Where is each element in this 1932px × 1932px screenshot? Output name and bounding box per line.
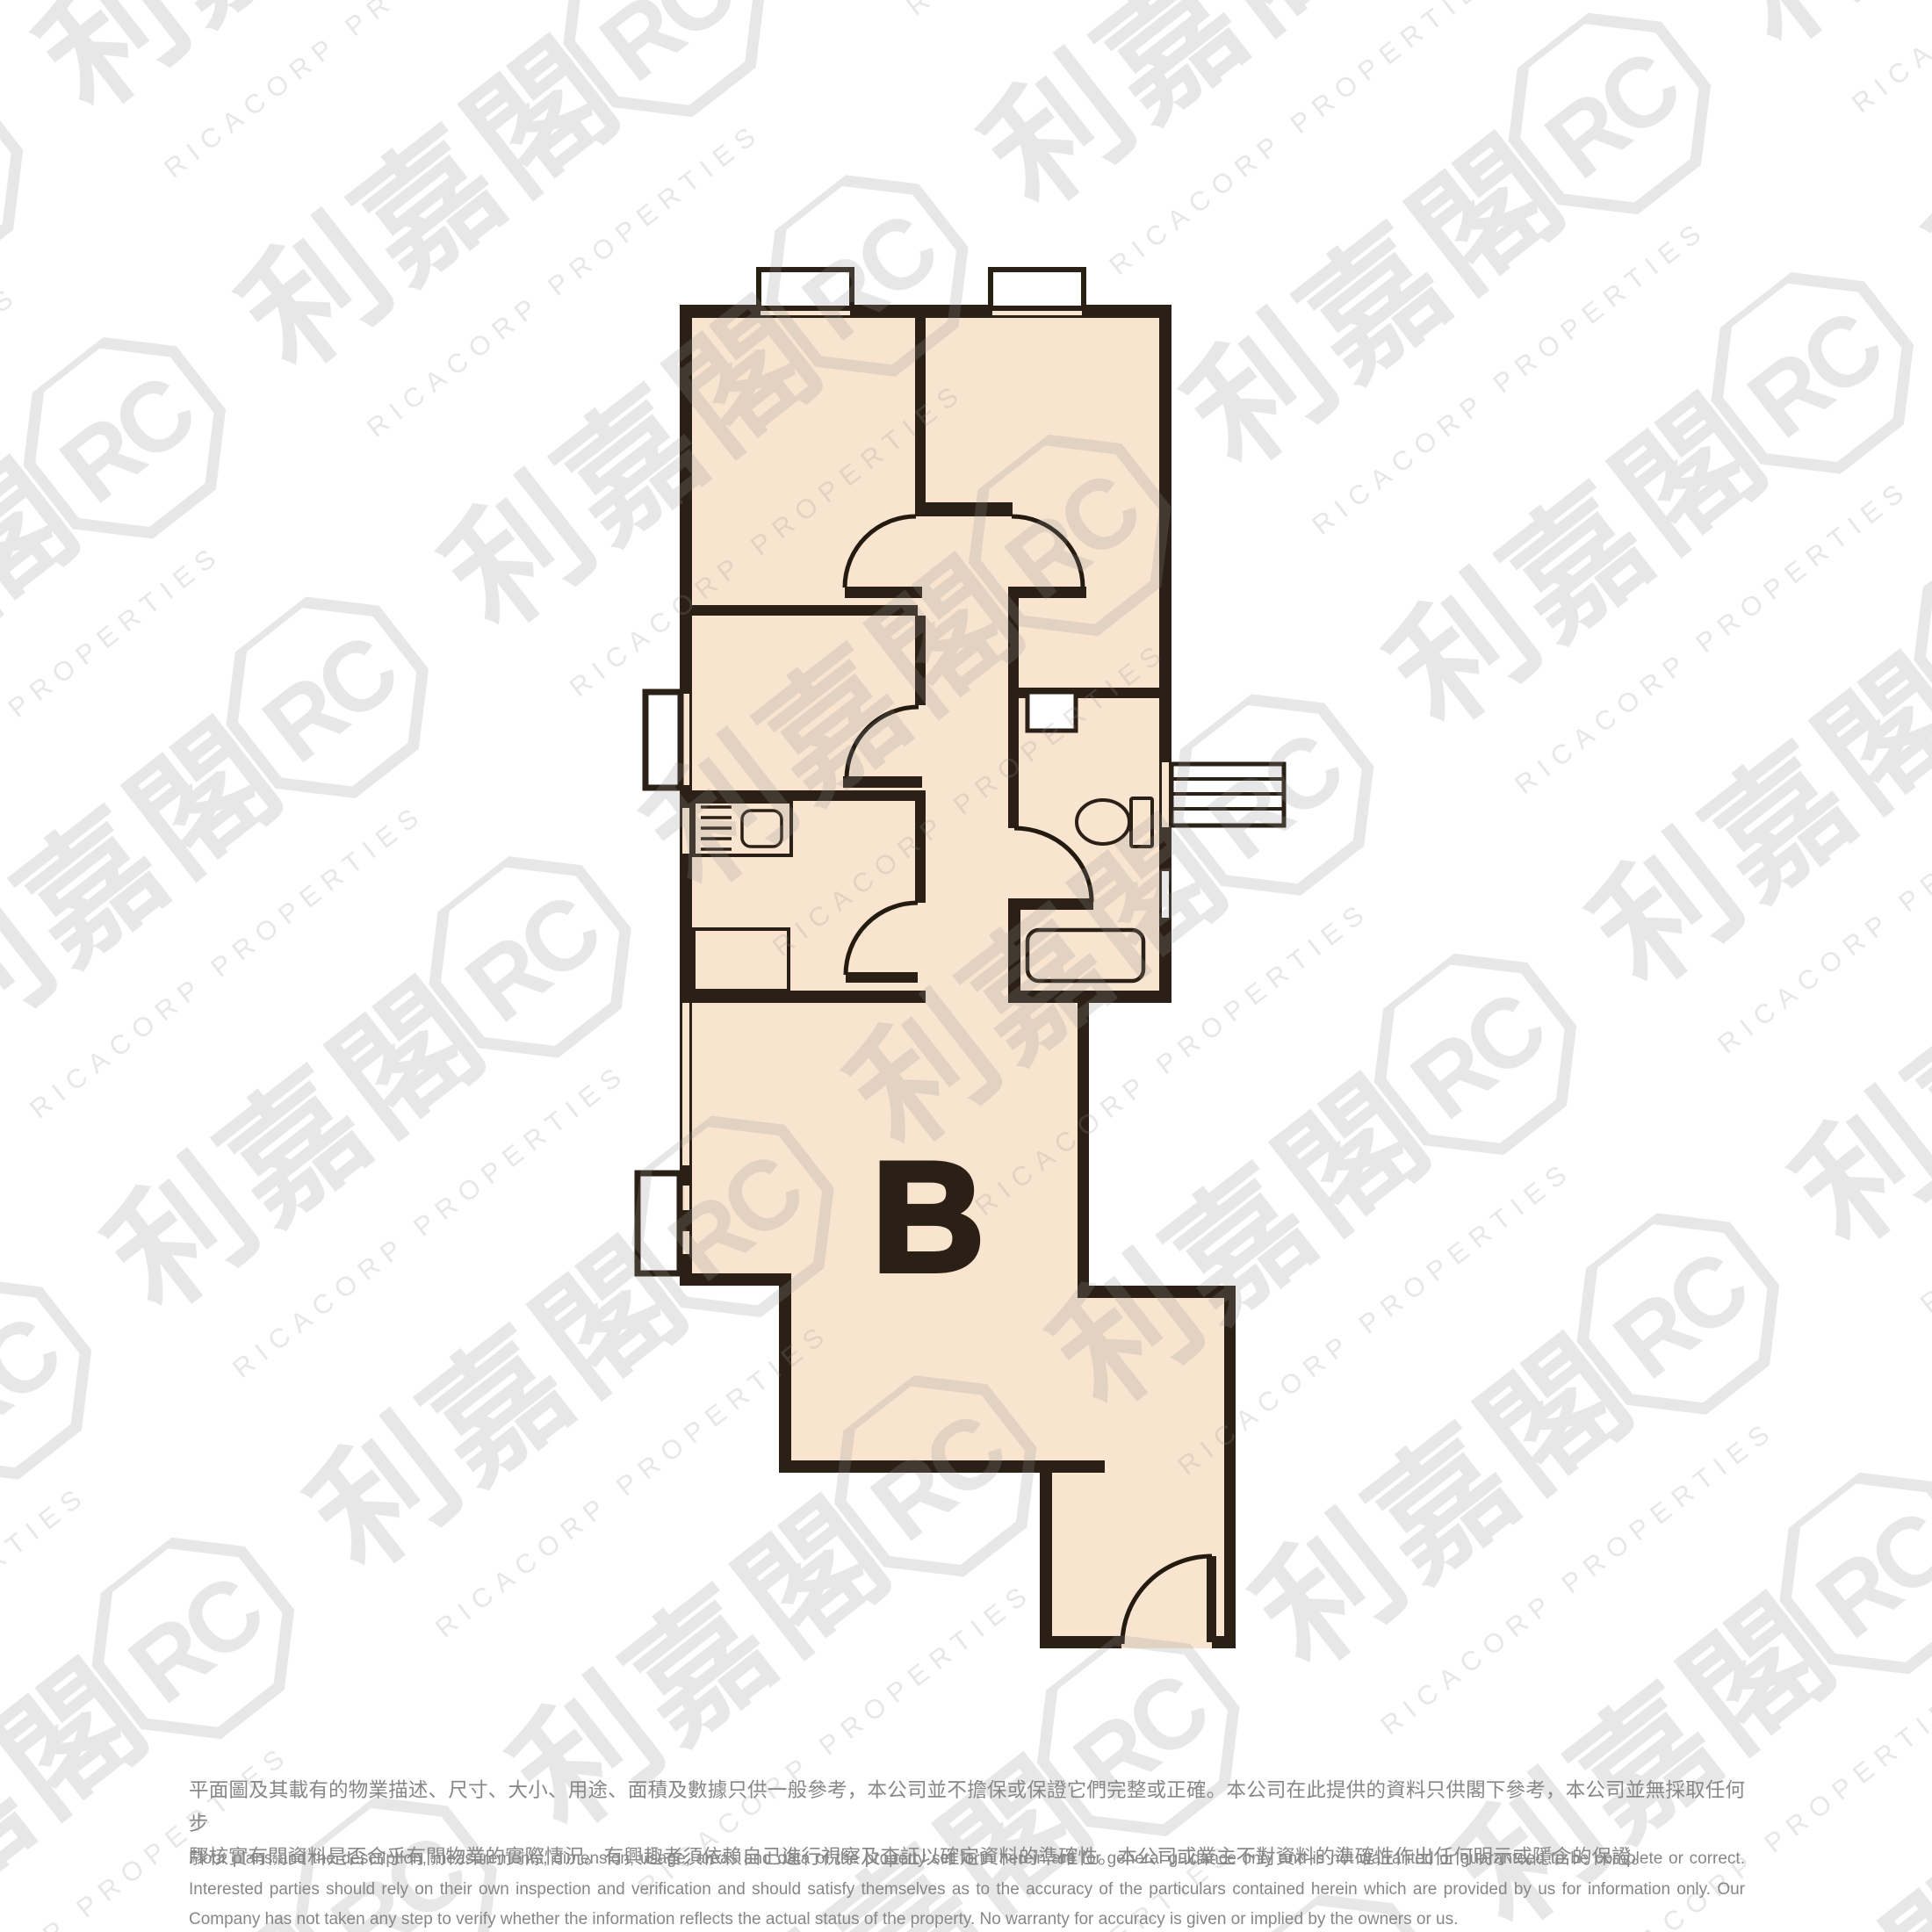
watermark-layer [0,0,1932,1932]
disclaimer-en-line3: Company has not taken any step to verify… [189,1905,1745,1932]
disclaimer-en-line2: Interested parties should rely on their … [189,1875,1745,1906]
disclaimer-zh-line1: 平面圖及其載有的物業描述、尺寸、大小、用途、面積及數據只供一般參考，本公司並不擔… [189,1774,1745,1841]
disclaimer-english: Floor plans and the description, measure… [189,1844,1745,1932]
disclaimer-en-line1: Floor plans and the description, measure… [189,1844,1745,1875]
floor-plan: B 利嘉閣 RC RICACORP PROPERTIES [0,0,1932,1932]
page-canvas: B 利嘉閣 RC RICACORP PROPERTIES 平面圖及其載有的物業描… [0,0,1932,1932]
